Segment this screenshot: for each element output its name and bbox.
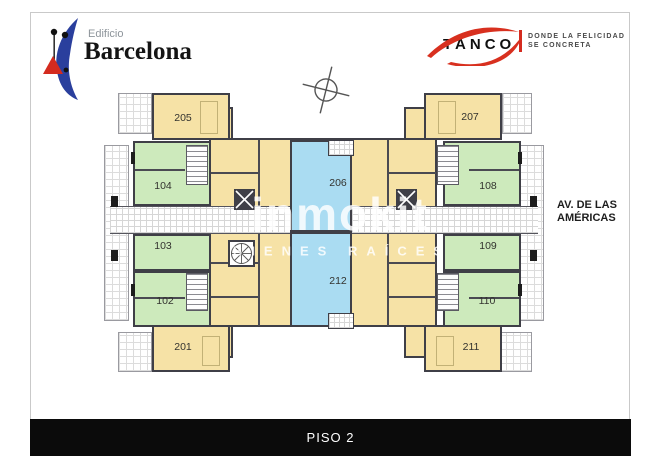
tanco-swoosh-icon	[425, 22, 527, 66]
stairs	[437, 273, 459, 311]
unit-label-102: 102	[156, 295, 174, 307]
unit-label-205: 205	[174, 112, 192, 124]
unit-label-207: 207	[461, 111, 479, 123]
closet	[202, 336, 220, 366]
compass-icon	[300, 64, 352, 116]
watermark-title: inmokit	[251, 187, 429, 241]
closet	[438, 101, 456, 134]
stairs	[186, 145, 208, 185]
unit-label-109: 109	[479, 240, 497, 252]
unit-label-201: 201	[174, 341, 192, 353]
window-mark	[131, 284, 135, 296]
interior-wall	[211, 296, 258, 298]
stairs	[437, 145, 459, 185]
closet	[200, 101, 218, 134]
door-mark	[111, 250, 118, 261]
door-mark	[530, 250, 537, 261]
terrace-top-left	[118, 93, 152, 134]
terrace-top-right	[502, 93, 532, 134]
unit-label-108: 108	[479, 180, 497, 192]
window-mark	[518, 284, 522, 296]
street-label: AV. DE LAS AMÉRICAS	[557, 199, 617, 225]
floorplan-page: Edificio Barcelona TANCO DONDE LA FELICI…	[0, 0, 660, 466]
street-line2: AMÉRICAS	[557, 212, 617, 225]
interior-wall	[469, 169, 519, 171]
watermark-subtitle: BIENES RAÍCES	[233, 244, 451, 259]
terrace-bottom-right	[498, 332, 532, 372]
unit-label-103: 103	[154, 240, 172, 252]
floor-bar-label: PISO 2	[307, 430, 355, 445]
interior-wall	[211, 172, 258, 174]
stairs	[186, 273, 208, 311]
window-mark	[518, 152, 522, 164]
interior-wall	[389, 262, 436, 264]
barcelona-logo-icon	[40, 16, 92, 104]
interior-wall	[389, 172, 436, 174]
street-line1: AV. DE LAS	[557, 199, 617, 212]
duct-bottom	[328, 313, 354, 329]
unit-label-110: 110	[479, 295, 496, 307]
unit-label-212: 212	[329, 275, 347, 287]
door-mark	[530, 196, 537, 207]
unit-label-104: 104	[154, 180, 172, 192]
duct-top	[328, 140, 354, 156]
interior-wall	[135, 169, 185, 171]
unit-label-211: 211	[463, 341, 480, 353]
door-mark	[111, 196, 118, 207]
floor-bar: PISO 2	[30, 419, 631, 456]
closet	[436, 336, 454, 366]
terrace-bottom-left	[118, 332, 152, 372]
interior-wall	[389, 296, 436, 298]
window-mark	[131, 152, 135, 164]
